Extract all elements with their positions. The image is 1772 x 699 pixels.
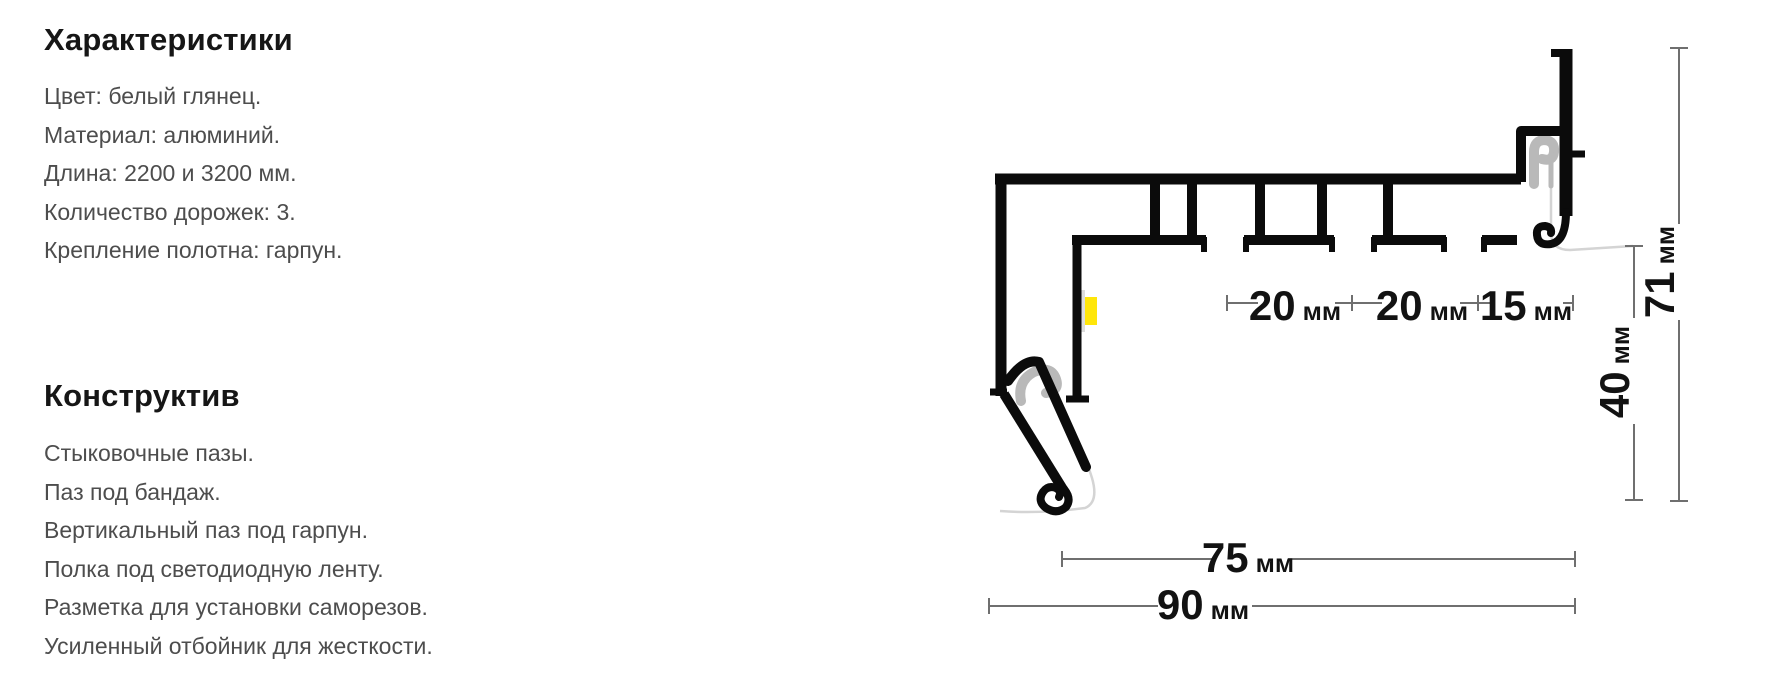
dim-label-inner-width: 75мм	[1202, 534, 1294, 581]
dimension-labels: 20мм 20мм 15мм 71мм 40мм 75мм 90мм	[1157, 226, 1683, 628]
track-posts	[1155, 181, 1388, 240]
dim-label-track-spacing-3: 15мм	[1480, 282, 1572, 329]
slot-lips	[1204, 237, 1484, 252]
dim-label-track-spacing-1: 20мм	[1249, 282, 1341, 329]
dim-label-total-width: 90мм	[1157, 581, 1249, 628]
dim-label-visible-height: 40мм	[1591, 326, 1638, 418]
dim-label-track-spacing-2: 20мм	[1376, 282, 1468, 329]
left-hook	[1041, 487, 1069, 511]
profile-drawing: 20мм 20мм 15мм 71мм 40мм 75мм 90мм	[0, 0, 1772, 699]
dim-line-90	[989, 598, 1575, 614]
dim-label-profile-height: 71мм	[1636, 226, 1683, 318]
led-strip	[1085, 297, 1097, 325]
profile-outline	[990, 49, 1585, 511]
profile-cross-section-diagram: 20мм 20мм 15мм 71мм 40мм 75мм 90мм	[0, 0, 1772, 699]
dimension-lines	[989, 48, 1688, 614]
dim-line-75	[1062, 551, 1575, 567]
